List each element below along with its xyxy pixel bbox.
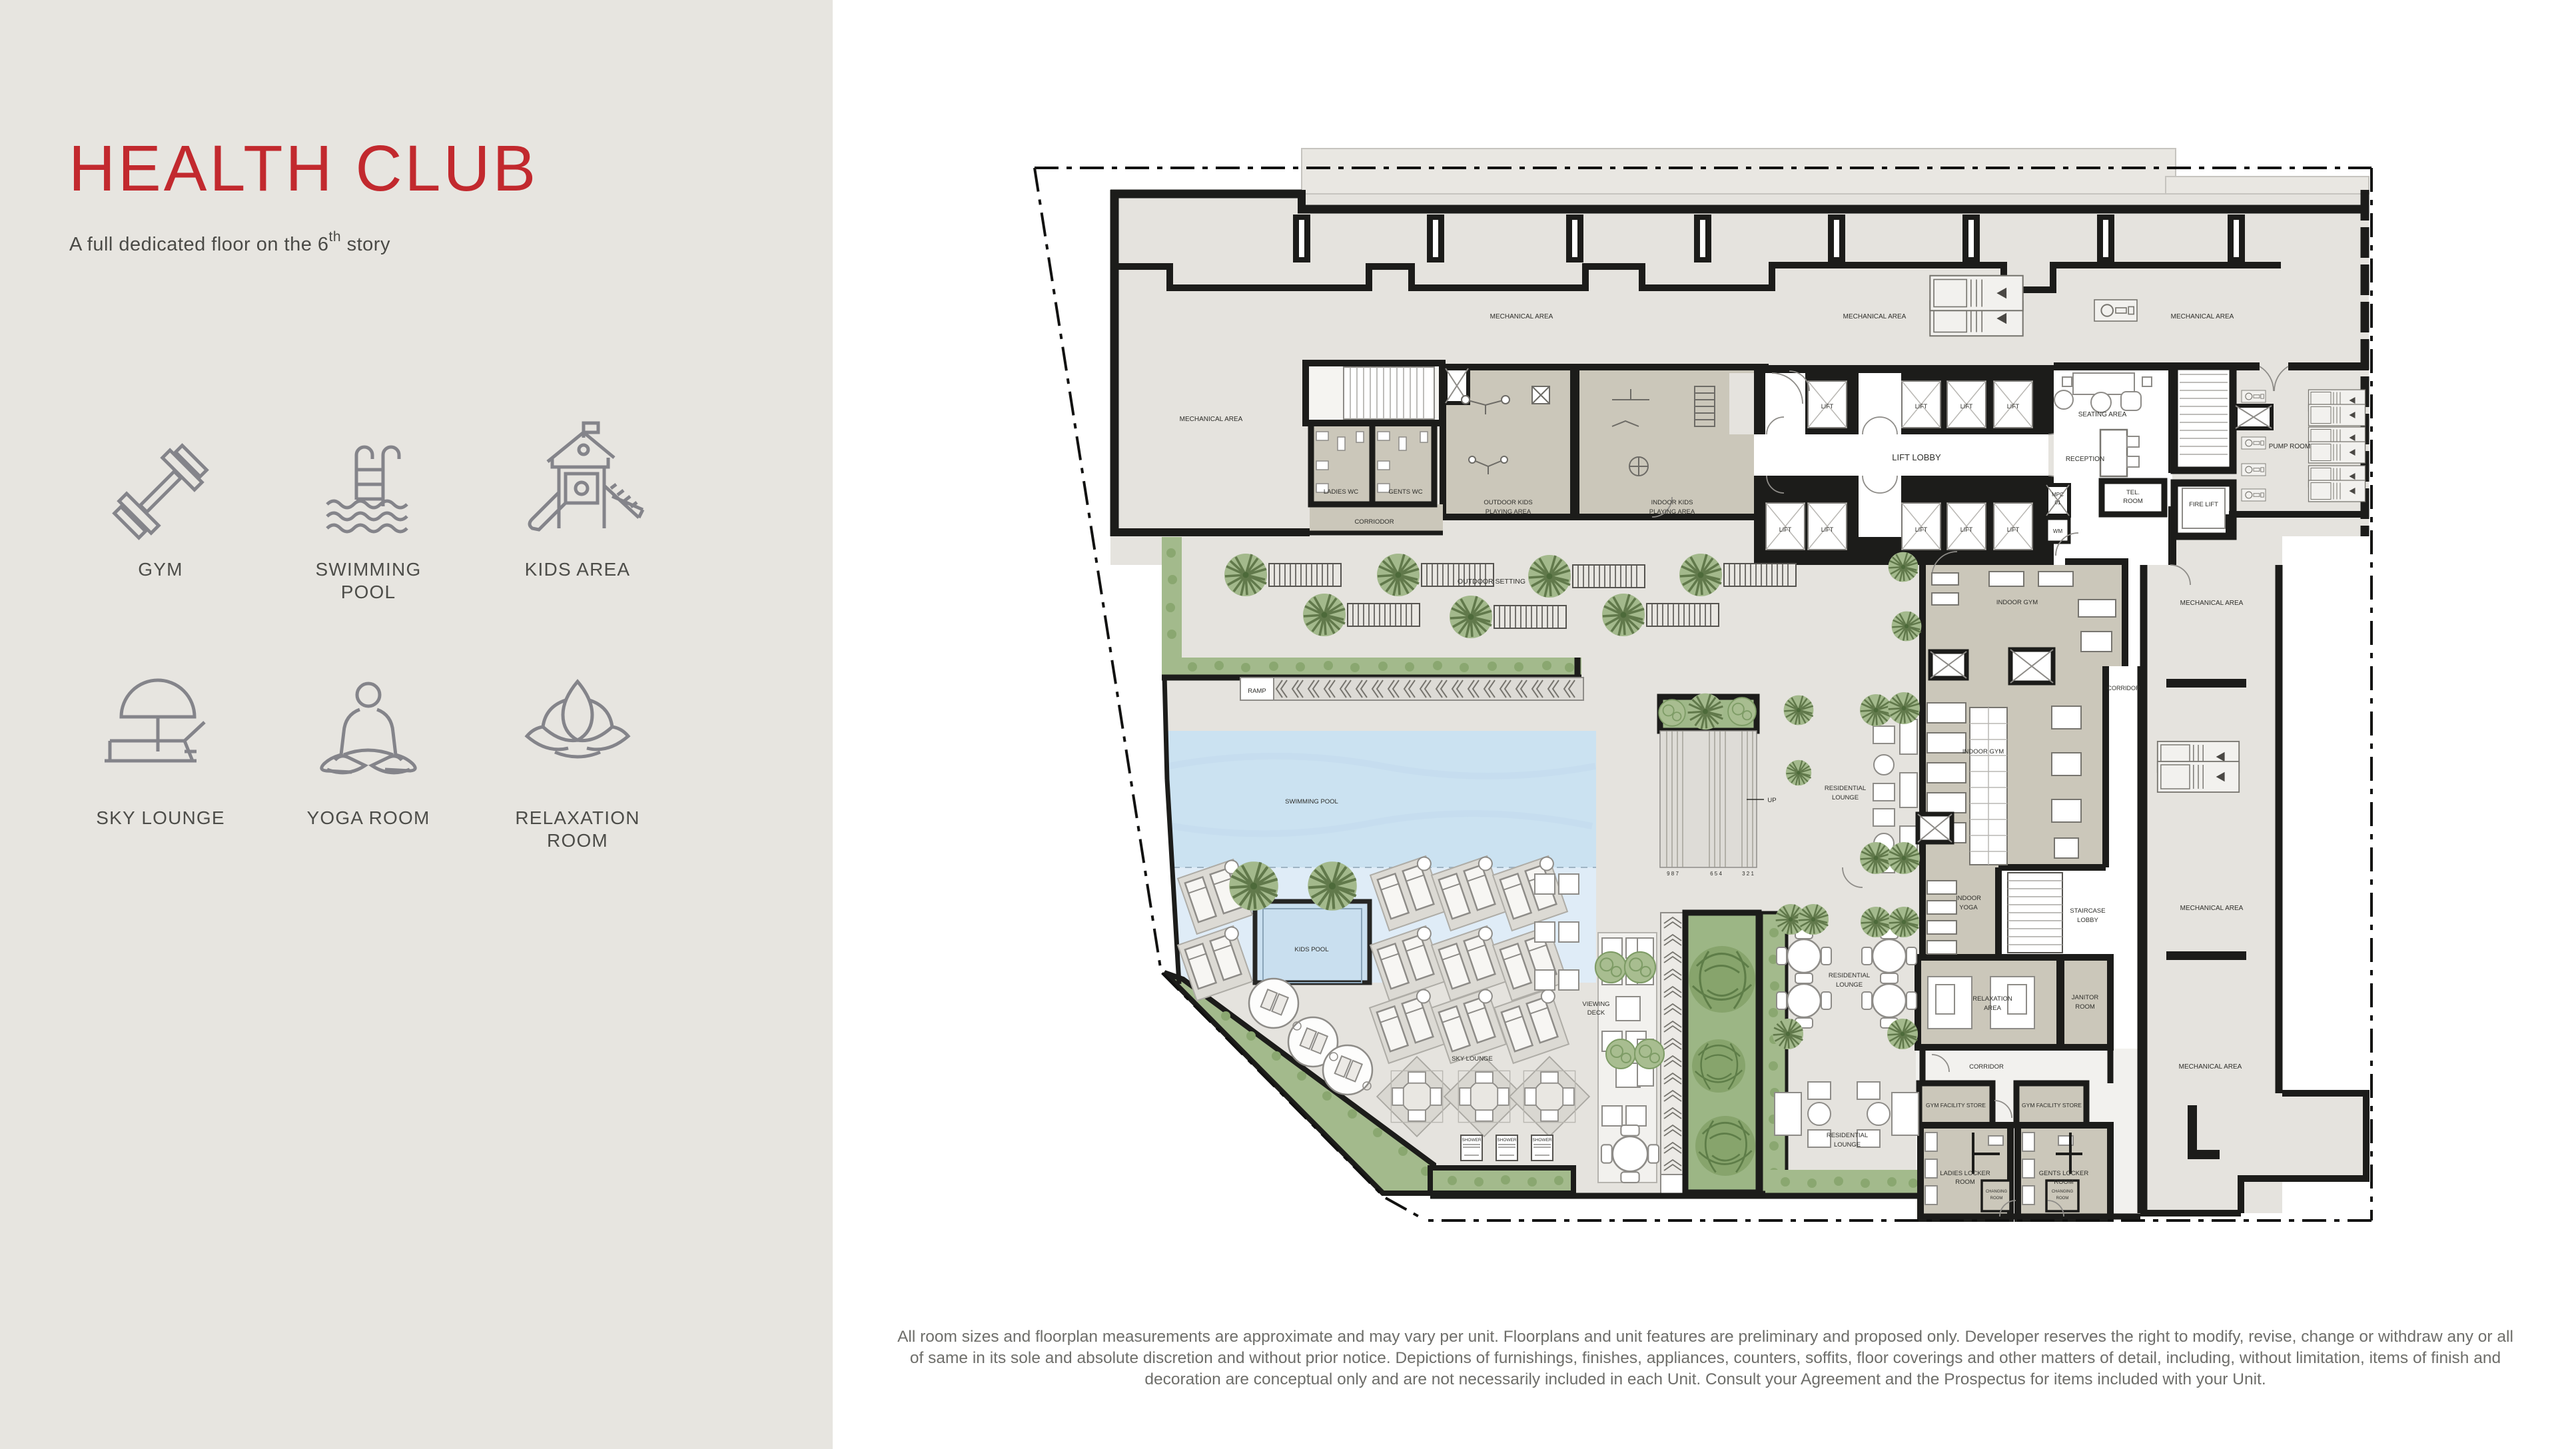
- svg-text:LIFT: LIFT: [2007, 403, 2020, 410]
- svg-text:AREA: AREA: [1984, 1005, 2002, 1012]
- svg-text:OUTDOOR KIDS: OUTDOOR KIDS: [1484, 499, 1532, 506]
- svg-text:ROOM: ROOM: [2054, 1179, 2074, 1186]
- svg-text:MPC: MPC: [2052, 492, 2064, 498]
- svg-text:RECEPTION: RECEPTION: [2066, 456, 2104, 463]
- svg-text:MECHANICAL AREA: MECHANICAL AREA: [1843, 313, 1907, 320]
- svg-text:ROOM: ROOM: [1990, 1197, 2003, 1201]
- svg-text:KIDS POOL: KIDS POOL: [1294, 946, 1328, 953]
- svg-text:LOUNGE: LOUNGE: [1836, 981, 1863, 989]
- svg-text:LIFT: LIFT: [1821, 403, 1834, 410]
- svg-text:RAMP: RAMP: [1248, 688, 1266, 695]
- svg-text:RESIDENTIAL: RESIDENTIAL: [1829, 972, 1870, 979]
- svg-text:9 8 7: 9 8 7: [1667, 871, 1679, 877]
- svg-text:MECHANICAL AREA: MECHANICAL AREA: [2180, 600, 2244, 607]
- svg-text:GENTS LOCKER: GENTS LOCKER: [2039, 1170, 2089, 1177]
- svg-text:LIFT: LIFT: [1821, 526, 1834, 533]
- svg-text:ROOM: ROOM: [2056, 1197, 2069, 1201]
- svg-text:ROOM: ROOM: [2075, 1003, 2095, 1011]
- svg-text:YOGA: YOGA: [1959, 904, 1978, 911]
- svg-text:VIEWING: VIEWING: [1582, 1001, 1609, 1008]
- svg-text:SWIMMING POOL: SWIMMING POOL: [1285, 798, 1338, 805]
- svg-text:CHANGING: CHANGING: [2052, 1190, 2074, 1194]
- svg-text:LIFT: LIFT: [1779, 526, 1792, 533]
- svg-text:LADIES LOCKER: LADIES LOCKER: [1940, 1170, 1990, 1177]
- svg-text:6 5 4: 6 5 4: [1710, 871, 1722, 877]
- svg-text:MECHANICAL AREA: MECHANICAL AREA: [2171, 313, 2234, 320]
- svg-text:LOUNGE: LOUNGE: [1832, 794, 1859, 801]
- svg-text:JANITOR: JANITOR: [2072, 994, 2099, 1001]
- svg-text:WM: WM: [2053, 528, 2063, 534]
- svg-text:MECHANICAL AREA: MECHANICAL AREA: [2179, 1063, 2242, 1071]
- svg-text:OUTDOOR SETTING: OUTDOOR SETTING: [1458, 578, 1525, 586]
- svg-text:UP: UP: [1767, 797, 1776, 804]
- svg-text:CORRIDOR: CORRIDOR: [2108, 685, 2140, 692]
- svg-text:TEL.: TEL.: [2126, 489, 2140, 496]
- svg-text:CHANGING: CHANGING: [1986, 1190, 2008, 1194]
- svg-text:CORRIODOR: CORRIODOR: [1354, 518, 1394, 526]
- svg-text:MECHANICAL AREA: MECHANICAL AREA: [1180, 416, 1243, 423]
- svg-text:LADIES WC: LADIES WC: [1324, 488, 1358, 496]
- svg-text:SHOWER: SHOWER: [1532, 1138, 1552, 1143]
- svg-text:LIFT: LIFT: [1915, 403, 1928, 410]
- svg-text:LIFT: LIFT: [2007, 526, 2020, 533]
- svg-text:3 2 1: 3 2 1: [1742, 871, 1754, 877]
- svg-text:PLAYING AREA: PLAYING AREA: [1649, 508, 1695, 516]
- svg-text:01: 01: [2055, 500, 2061, 506]
- svg-text:LOBBY: LOBBY: [2077, 917, 2098, 924]
- svg-text:ROOM: ROOM: [1955, 1179, 1975, 1186]
- svg-text:STAIRCASE: STAIRCASE: [2070, 907, 2105, 915]
- svg-text:INDOOR GYM: INDOOR GYM: [1996, 599, 2038, 606]
- svg-text:LOUNGE: LOUNGE: [1834, 1141, 1861, 1149]
- svg-text:LIFT LOBBY: LIFT LOBBY: [1892, 452, 1941, 462]
- svg-text:SEATING AREA: SEATING AREA: [2078, 411, 2127, 418]
- svg-text:LIFT: LIFT: [1915, 526, 1928, 533]
- svg-text:GYM FACILITY STORE: GYM FACILITY STORE: [2022, 1102, 2082, 1109]
- svg-text:MECHANICAL AREA: MECHANICAL AREA: [1490, 313, 1553, 320]
- svg-text:SKY LOUNGE: SKY LOUNGE: [1452, 1055, 1493, 1063]
- svg-text:INDOOR KIDS: INDOOR KIDS: [1651, 499, 1693, 506]
- svg-text:SHOWER: SHOWER: [1497, 1138, 1517, 1143]
- svg-text:GYM FACILITY STORE: GYM FACILITY STORE: [1926, 1102, 1986, 1109]
- svg-text:PLAYING AREA: PLAYING AREA: [1486, 508, 1531, 516]
- svg-text:CORRIDOR: CORRIDOR: [1969, 1063, 2004, 1071]
- svg-text:FIRE LIFT: FIRE LIFT: [2189, 501, 2218, 508]
- svg-text:INDOOR: INDOOR: [1956, 895, 1981, 902]
- svg-text:RELAXATION: RELAXATION: [1972, 995, 2012, 1003]
- svg-text:GENTS WC: GENTS WC: [1388, 488, 1422, 496]
- svg-text:ROOM: ROOM: [2123, 498, 2143, 505]
- svg-text:PUMP ROOM: PUMP ROOM: [2269, 443, 2311, 450]
- svg-text:MECHANICAL AREA: MECHANICAL AREA: [2180, 905, 2244, 912]
- svg-text:LIFT: LIFT: [1960, 403, 1973, 410]
- svg-text:LIFT: LIFT: [1960, 526, 1973, 533]
- svg-text:RESIDENTIAL: RESIDENTIAL: [1825, 785, 1866, 792]
- svg-text:RESIDENTIAL: RESIDENTIAL: [1827, 1132, 1868, 1139]
- svg-text:INDOOR GYM: INDOOR GYM: [1962, 748, 2004, 755]
- svg-text:DECK: DECK: [1587, 1009, 1605, 1017]
- svg-text:SHOWER: SHOWER: [1462, 1138, 1482, 1143]
